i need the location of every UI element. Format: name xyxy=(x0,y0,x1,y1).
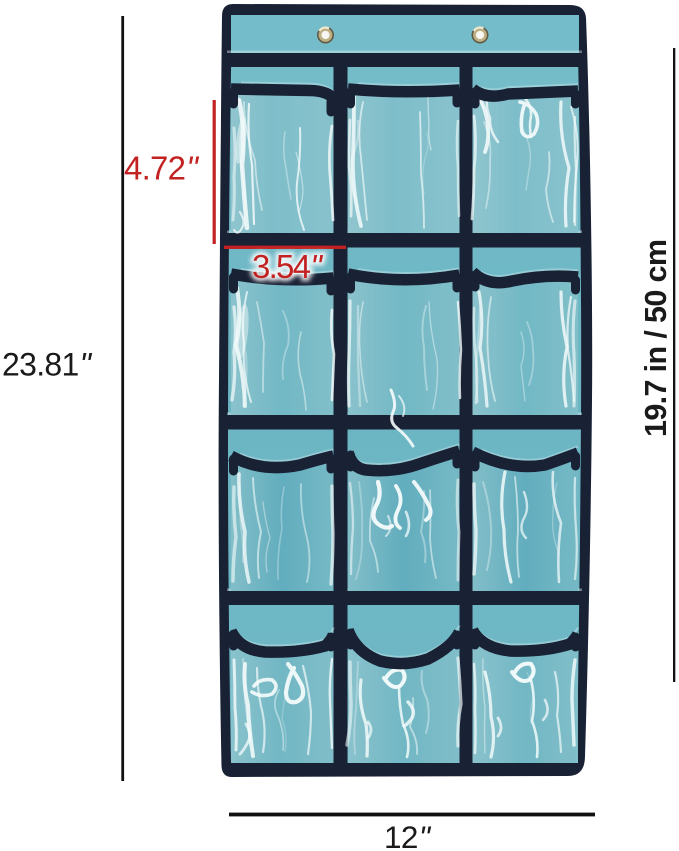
svg-text:19.7 in / 50 cm: 19.7 in / 50 cm xyxy=(639,239,673,437)
svg-text:4.72": 4.72" xyxy=(124,150,199,187)
svg-text:23.81": 23.81" xyxy=(2,347,93,383)
svg-text:12": 12" xyxy=(384,819,432,851)
svg-text:3.54": 3.54" xyxy=(252,248,323,285)
